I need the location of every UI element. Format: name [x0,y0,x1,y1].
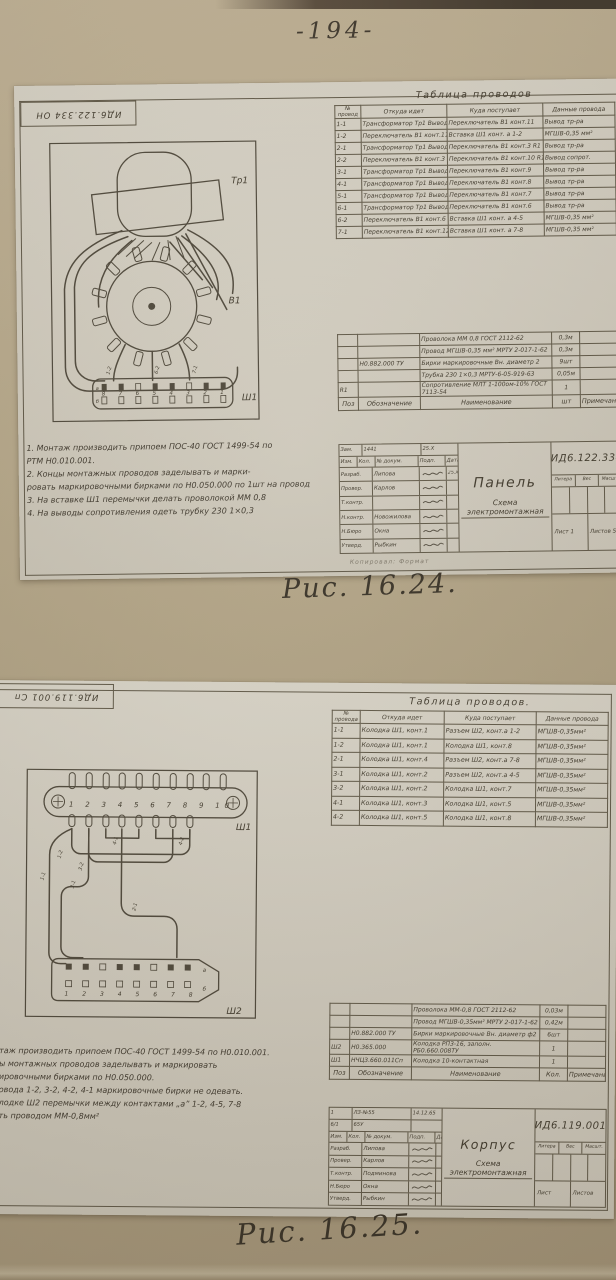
change-cell: 1 [330,1108,353,1119]
document-type: Схема электромонтажная [461,497,549,518]
connector-symbol: 1 2 3 4 5 6 7 8 а б [51,959,218,1002]
materials-name-label: Наименование [411,1067,539,1081]
signature-scribble [420,510,447,524]
wire-label: 6-2 [154,365,162,374]
change-cell [411,1120,441,1131]
signature-role: Н.контр. [340,511,373,525]
inventory-stamp: ИД6.122.334 ОН [20,101,136,127]
litera-weight-scale: Литера Вес Масшт. [535,1142,605,1182]
wire-data-cell: Вывод тр-ра [543,139,615,152]
diagram-frame [25,769,257,1018]
material-name-cell: Колодка РП3-16, заполн. РБ0.660.008ТУ [412,1040,540,1056]
materials-qty-label: Кол. [539,1068,567,1081]
signature-name: Окна [362,1181,409,1193]
materials-name-label: Наименование [420,395,552,410]
hdr-izm: Изм. [340,457,358,467]
material-qty-cell: 1 [539,1056,567,1068]
sheet-count-row: Лист Листов [535,1181,605,1207]
connector-pin-numbers: 8 7 6 5 4 3 2 1 [102,390,224,397]
material-ref-cell [350,1003,412,1015]
signature-role: Провер. [340,482,373,496]
figure-caption: Рис. 16.24. [282,569,459,605]
material-ref-cell: Н0.882.000 ТУ [350,1027,412,1039]
signature-row: Утверд. Рыбкин [329,1193,441,1205]
wire-number-cell: 2-1 [335,142,361,154]
hdr-data: Дата [446,456,458,466]
wiring-diagram-korpus: 1 2 3 4 5 6 7 8 9 10 Ш1 [12,758,299,1038]
signature-name: Окна [373,524,420,538]
materials-header-row: Поз Обозначение Наименование шт Примечан… [338,394,616,410]
wiring-diagram-panel: Тр1 [35,128,325,437]
signature-row: Т.контр. [340,495,458,511]
wire-from-cell: Трансформатор Тр1 Вывод 6 [362,201,448,214]
material-pos-cell [338,334,358,346]
material-pos-cell: R1 [338,382,358,397]
signature-name: Рыбкин [374,539,421,553]
row-a-letter: а [96,386,99,392]
book-edge-shadow [215,0,616,9]
signature-name: Новожилова [373,510,420,524]
material-qty-cell: 6шт [540,1029,568,1041]
wire-number-cell: 7-1 [336,226,362,238]
material-ref-cell [358,334,420,347]
col-from: Откуда идет [361,104,447,118]
col-to: Куда поступает [444,711,536,725]
col-wire-number: №провода [332,710,360,723]
signature-row: Н.Бюро Окна [329,1180,441,1193]
wire-to-cell: Колодка Ш1, конт.8 [444,739,536,754]
photographed-document-page: -194- ИД6.122.334 ОН Тр1 [0,0,616,1280]
signature-name: Липова [373,467,420,481]
hdr-podpis: Подп. [419,456,446,466]
title-block: Зам. 1441 25.X Изм. Кол. № докум. Подп. … [338,441,616,554]
signature-row: Разраб. Липова [329,1143,441,1156]
material-qty-cell: 1 [552,380,580,395]
page-number: -194- [296,17,376,44]
materials-note-label: Примечание [580,394,616,407]
terminal-block-label: Ш1 [236,823,251,833]
signature-name: Липова [362,1143,409,1155]
terminal-block-symbol: 1 2 3 4 5 6 7 8 9 10 [44,772,247,828]
title-block-names: Панель Схема электромонтажная [458,442,552,551]
sheet-count-row: Лист 1 Листов 5 [552,514,616,551]
signature-role: Утверд. [341,539,374,553]
wire-data-cell: МГШВ-0,35мм² [536,739,608,754]
material-ref-cell [358,370,420,383]
wire-from-cell: Переключатель В1 конт.12 [362,225,448,238]
change-cell: 6/1 [329,1120,352,1131]
wire-from-cell: Колодка Ш1, конт.5 [359,810,443,825]
hdr-kol: Кол. [347,1132,365,1142]
title-block-signatures: Зам. 1441 25.X Изм. Кол. № докум. Подп. … [339,444,459,553]
material-note-cell [568,1017,606,1029]
title-block-number-zone: ИД6.122.334 Литера Вес Масшт. Лист 1 Лис… [551,442,616,551]
signature-scribble [409,1194,436,1206]
material-pos-cell [330,1003,350,1015]
wire-data-cell: Вывод тр-ра [544,175,616,188]
sheets-label: Листов [570,1182,605,1207]
wire-table-section: Таблица проводов №провод Откуда идет Куд… [334,87,616,239]
wire-to-cell: Разъем Ш2, конт.а 4-5 [444,768,536,783]
note-line: ть проводом ММ-0,8мм² [0,1109,327,1125]
col-wire-data: Данные провода [536,712,608,726]
material-note-cell [580,331,616,343]
wire-data-cell: МГШВ-0,35 мм² [544,211,616,224]
material-pos-cell [338,346,358,358]
signature-name [373,496,420,510]
material-note-cell [567,1056,605,1068]
signature-name: Карлов [373,481,420,495]
signature-scribble [421,538,448,552]
wire-from-cell: Трансформатор Тр1 Вывод 2 [361,141,447,154]
materials-list: Проволока ММ 0,8 ГОСТ 2112-62 0,3м Прово… [337,329,616,411]
hdr-data: Дата [435,1133,441,1143]
material-ref-cell: Н0.882.000 ТУ [358,358,420,371]
sheet-label: Лист 1 [552,514,588,550]
wire-from-cell: Трансформатор Тр1 Вывод 1 [361,117,447,130]
terminal-numbers: 1 2 3 4 5 6 7 8 9 10 [69,801,230,810]
diagram-frame [50,141,259,421]
wire-bundle [64,229,238,391]
wire-number-cell: 2-1 [332,752,360,767]
wire-data-cell: Вывод сопрот. [543,151,615,164]
wire-number-cell: 6-2 [336,214,362,226]
sheet-label: Лист [535,1181,571,1206]
litera-label: Литера [552,475,576,486]
material-pos-cell [338,370,358,382]
materials-pos-label: Поз [329,1066,349,1079]
drawing-sheet-korpus: ИД6.119.001 Сп [0,680,616,1219]
change-cell: 65У [352,1120,411,1131]
wire-from-cell: Переключатель В1 конт.11 [361,129,447,142]
litera-weight-scale: Литера Вес Масшт. [552,475,616,515]
material-note-cell [568,1029,606,1041]
wire-label: 7-1 [192,365,200,374]
wire-table: №провод Откуда идет Куда поступает Данны… [334,102,616,239]
wire-from-cell: Колодка Ш1, конт.1 [360,723,444,738]
signature-row: Разраб. Липова 25.X [340,467,458,483]
change-cell: 14.12.65 [412,1108,442,1119]
material-note-cell [580,379,616,394]
col-wire-data: Данные провода [543,102,615,116]
wire-data-cell: МГШВ-0,35мм² [536,783,608,798]
material-name-cell: Провод МГШВ-0,35мм² МРТУ 2-017-1-62 [412,1016,540,1029]
row-a-letter: а [203,968,207,974]
change-record-row: 6/1 65У [329,1120,441,1133]
wire-label: 1-2 [57,850,65,859]
switch-label: В1 [229,296,241,306]
wire-to-cell: Вставка Ш1 конт. а 7-8 [448,224,544,237]
wire-number-cell: 3-1 [332,767,360,782]
material-ref-cell: Н0.365.000 [350,1039,412,1054]
signature-row: Провер. Карлов [340,481,458,497]
signature-row: Т.контр. Подминова [329,1168,441,1181]
signature-name: Подминова [362,1168,409,1180]
material-ref-cell [358,382,420,398]
material-pos-cell [330,1027,350,1039]
hdr-kol: Кол. [358,457,376,467]
wire-data-cell: Вывод тр-ра [544,187,616,200]
signature-row: Н.контр. Новожилова [340,510,458,526]
weight-label: Вес [559,1142,583,1153]
materials-note-label: Примечание [567,1068,605,1081]
signature-role: Н.Бюро [340,525,373,539]
weight-label: Вес [575,475,599,486]
wire-number-cell: 1-1 [335,118,361,130]
material-qty-cell: 0,3м [552,332,580,344]
hdr-izm: Изм. [329,1132,347,1142]
material-note-cell [568,1041,606,1056]
wire-from-cell: Переключатель В1 конт.3 R1 [361,153,447,166]
materials-ref-label: Обозначение [349,1066,411,1079]
col-to: Куда поступает [447,103,543,117]
signature-scribble [409,1169,436,1181]
signature-role: Провер. [329,1155,362,1167]
row-b-letter: б [96,399,99,405]
wire-table-title: Таблица проводов. [332,695,608,710]
signature-name: Рыбкин [362,1193,409,1205]
material-ref-cell: НЧЦ3.660.011Сп [349,1054,411,1066]
row-b-letter: б [203,987,207,993]
wire-label: 4-2 [178,837,186,846]
wire-number-cell: 3-1 [336,166,362,178]
stamp-text: ИД6.119.001 Сп [14,691,99,702]
wire-number-cell: 4-2 [331,810,359,825]
document-number: ИД6.122.334 [551,442,616,476]
wire-from-cell: Трансформатор Тр1 Вывод 3 [362,165,448,178]
signature-role: Т.контр. [329,1168,362,1180]
material-pos-cell [330,1015,350,1027]
hdr-docnum: № докум. [376,456,419,467]
wire-label: 1-1 [40,871,48,880]
wire-from-cell: Колодка Ш1, конт.1 [360,738,444,753]
signature-date: 25.X [447,470,458,476]
wire-from-cell: Колодка Ш1, конт.3 [359,796,443,811]
scale-label: Масшт. [583,1143,606,1154]
wire-number-cell: 2-2 [335,154,361,166]
signature-header-row: Изм. Кол. № докум. Подп. Дата [329,1132,441,1144]
wire-data-cell: Вывод тр-ра [543,115,615,128]
materials-qty-label: шт [552,395,580,408]
wire-number-cell: 1-2 [332,738,360,753]
scale-label: Масшт. [599,475,616,486]
change-cell: 1441 [362,444,421,456]
wire-number-cell: 6-1 [336,202,362,214]
material-name-cell: Бирки маркировочные Вн. диаметр ф2 [412,1028,540,1041]
wire-from-cell: Переключатель В1 конт.6 [362,213,448,226]
signature-row: Н.Бюро Окна [340,524,458,540]
material-note-cell [580,343,616,355]
wire-data-cell: МГШВ-0,35мм² [535,797,607,812]
material-ref-cell [358,346,420,359]
signature-scribble [409,1156,436,1168]
material-ref-cell [350,1015,412,1027]
materials-ref-label: Обозначение [358,397,420,411]
wire-number-cell: 4-1 [331,796,359,811]
change-cell: ЛЗ-№55 [353,1108,412,1119]
wire-data-cell: Вывод тр-ра [544,199,616,212]
title-block: 1 ЛЗ-№55 14.12.65 6/1 65У Изм. Кол. № до… [328,1107,607,1208]
signature-row: Провер. Карлов [329,1155,441,1168]
document-number: ИД6.119.001 [535,1109,605,1143]
signature-role: Т.контр. [340,496,373,510]
connector-pin-numbers: 1 2 3 4 5 6 7 8 [65,991,193,999]
material-qty-cell: 9шт [552,356,580,368]
wire-table-title: Таблица проводов [334,87,614,103]
wire-to-cell: Разъем Ш2, конт.а 7-8 [444,753,536,768]
materials-pos-label: Поз [338,397,358,410]
wire-bundle [49,828,190,964]
product-name: Панель [473,476,536,492]
wire-data-cell: МГШВ-0,35 мм² [544,223,616,236]
change-record-row: 1 ЛЗ-№55 14.12.65 [330,1108,442,1121]
wire-from-cell: Трансформатор Тр1 Вывод 5 [362,189,448,202]
materials-table: Проволока ММ 0,8 ГОСТ 2112-62 0,3м Прово… [337,331,616,411]
material-name-cell: Сопротивление МЛТ 1-100ом-10% ГОСТ 7113-… [420,380,552,397]
wire-table-section: Таблица проводов. №провода Откуда идет К… [331,695,608,828]
material-pos-cell: Ш1 [329,1054,349,1066]
inventory-stamp: ИД6.119.001 Сп [0,683,114,709]
wire-number-cell: 4-1 [336,178,362,190]
signature-scribble [409,1143,436,1155]
wire-data-cell: МГШВ-0,35мм² [535,812,607,827]
signature-name: Карлов [362,1156,409,1168]
signature-scribble [420,467,447,481]
signature-role: Н.Бюро [329,1180,362,1192]
wire-from-cell: Трансформатор Тр1 Вывод 4 [362,177,448,190]
signature-scribble [409,1181,436,1193]
signature-role: Разраб. [329,1143,362,1155]
material-qty-cell: 0,3м [552,344,580,356]
wire-to-cell: Колодка Ш1, конт.7 [444,782,536,797]
wire-to-cell: Колодка Ш1, конт.8 [443,811,535,826]
wire-data-cell: МГШВ-0,35 мм² [543,127,615,140]
mounting-notes: таж производить припоем ПОС-40 ГОСТ 1499… [0,1044,327,1125]
stamp-text: ИД6.122.334 ОН [35,108,121,119]
change-cell: Зам. [339,445,362,456]
materials-list: Проволока ММ-0,8 ГОСТ 2112-62 0,03м Пров… [329,1001,606,1082]
connector-label: Ш2 [226,1007,242,1017]
wire-table: №провода Откуда идет Куда поступает Данн… [331,710,609,828]
title-block-number-zone: ИД6.119.001 Литера Вес Масшт. Лист Листо… [535,1109,606,1207]
change-cell: 25.X [421,444,457,455]
wire-number-cell: 1-1 [332,723,360,738]
transformer-symbol [91,151,224,261]
material-qty-cell: 0,05м [552,368,580,380]
wire-data-cell: МГШВ-0,35мм² [536,754,608,769]
wire-data-cell: МГШВ-0,35мм² [536,768,608,783]
wire-label: 2-1 [131,902,139,911]
wire-label: 1-2 [106,366,114,375]
material-qty-cell: 0,42м [540,1017,568,1029]
material-qty-cell: 0,03м [540,1005,568,1017]
title-block-names: Корпус Схема электромонтажная [442,1109,536,1207]
wire-label: 4-1 [112,836,120,845]
wire-number-cell: 1-2 [335,130,361,142]
litera-boxes [552,487,616,514]
transformer-label: Тр1 [231,176,248,186]
wire-from-cell: Колодка Ш1, конт.2 [360,767,444,782]
product-name: Корпус [460,1136,516,1151]
litera-label: Литера [535,1142,559,1153]
hdr-podpis: Подп. [408,1132,435,1142]
wire-number-cell: 5-1 [336,190,362,202]
wire-table-row: 4-2 Колодка Ш1, конт.5 Колодка Ш1, конт.… [331,810,607,827]
connector-symbol: 8 7 6 5 4 3 2 1 а б [93,377,233,409]
signature-scribble [420,524,447,538]
material-note-cell [580,355,616,367]
wire-to-cell: Колодка Ш1, конт.5 [443,797,535,812]
signature-role: Разраб. [340,468,373,482]
material-pos-cell [338,358,358,370]
wire-label: 3-1 [70,880,78,889]
wire-data-cell: Вывод тр-ра [543,163,615,176]
material-name-cell: Проволока ММ-0,8 ГОСТ 2112-62 [412,1004,540,1017]
col-from: Откуда идет [360,710,444,724]
signature-scribble [420,495,447,509]
signature-row: Утверд. Рыбкин [341,538,459,553]
page-stack-edge [0,1264,616,1280]
wire-from-cell: Колодка Ш1, конт.2 [360,781,444,796]
wire-data-cell: МГШВ-0,35мм² [536,725,608,740]
wire-to-cell: Разъем Ш2, конт.а 1-2 [444,724,536,739]
drawing-sheet-panel: ИД6.122.334 ОН Тр1 [14,79,616,580]
signature-scribble [420,481,447,495]
wire-number-cell: 3-2 [332,781,360,796]
litera-boxes [535,1154,605,1181]
title-block-signatures: 1 ЛЗ-№55 14.12.65 6/1 65У Изм. Кол. № до… [329,1108,443,1206]
document-type: Схема электромонтажная [444,1158,532,1179]
materials-table: Проволока ММ-0,8 ГОСТ 2112-62 0,03м Пров… [329,1003,607,1082]
connector-label: Ш1 [242,393,257,403]
wire-label: 3-2 [78,862,86,871]
material-qty-cell: 1 [540,1041,568,1056]
mounting-notes: 1. Монтаж производить припоем ПОС-40 ГОС… [26,438,337,520]
material-note-cell [580,367,616,379]
material-note-cell [568,1005,606,1017]
wire-from-cell: Колодка Ш1, конт.4 [360,752,444,767]
hdr-docnum: № докум. [365,1132,408,1142]
col-wire-number: №провод [335,105,361,118]
sheets-label: Листов 5 [588,514,616,550]
materials-header-row: Поз Обозначение Наименование Кол. Примеч… [329,1066,605,1081]
signature-role: Утверд. [329,1193,362,1205]
material-name-cell: Колодка 10-контактная [411,1055,539,1068]
material-pos-cell: Ш2 [330,1039,350,1054]
